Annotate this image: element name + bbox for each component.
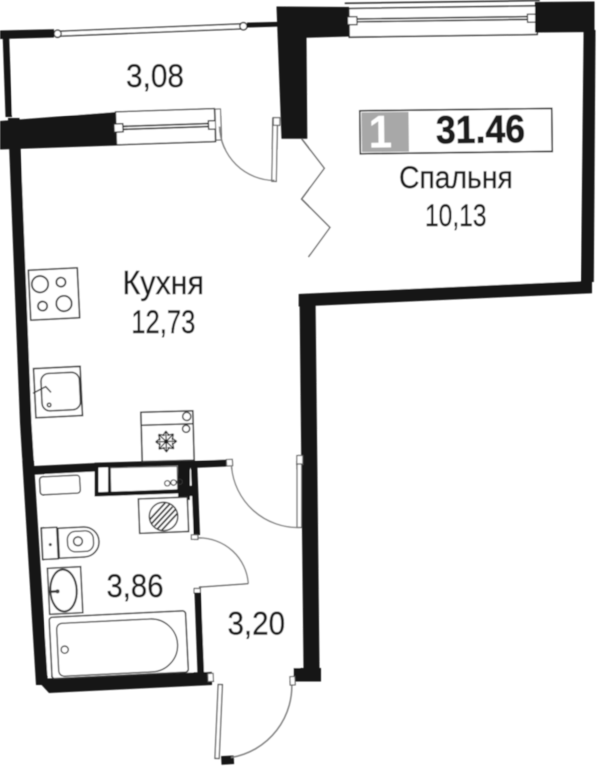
svg-text:10,13: 10,13 bbox=[425, 197, 487, 233]
svg-text:1: 1 bbox=[368, 105, 392, 157]
svg-text:3,08: 3,08 bbox=[126, 58, 184, 94]
svg-text:12,73: 12,73 bbox=[131, 304, 195, 340]
svg-text:Кухня: Кухня bbox=[123, 264, 205, 301]
svg-text:3,20: 3,20 bbox=[228, 606, 286, 642]
svg-text:Спальня: Спальня bbox=[399, 160, 513, 195]
svg-text:3,86: 3,86 bbox=[107, 568, 164, 604]
svg-text:31.46: 31.46 bbox=[436, 108, 526, 152]
